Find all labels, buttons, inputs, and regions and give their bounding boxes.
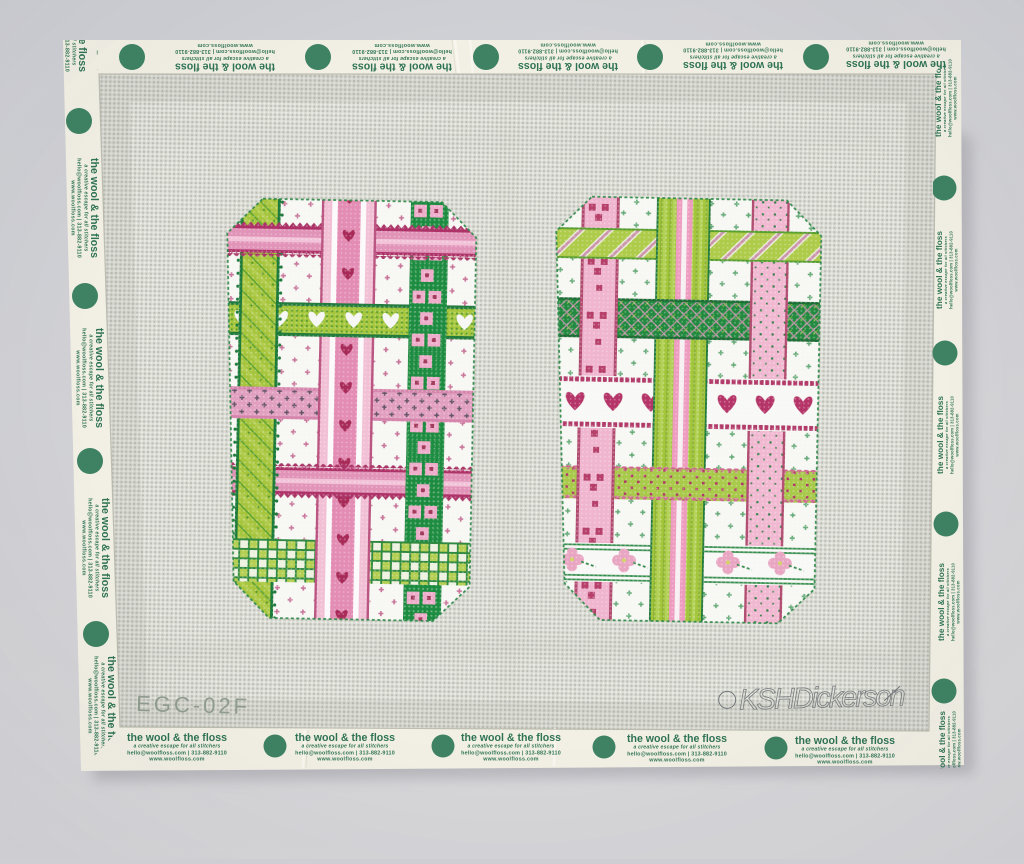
svg-text:KSHDickerson: KSHDickerson bbox=[739, 680, 905, 716]
